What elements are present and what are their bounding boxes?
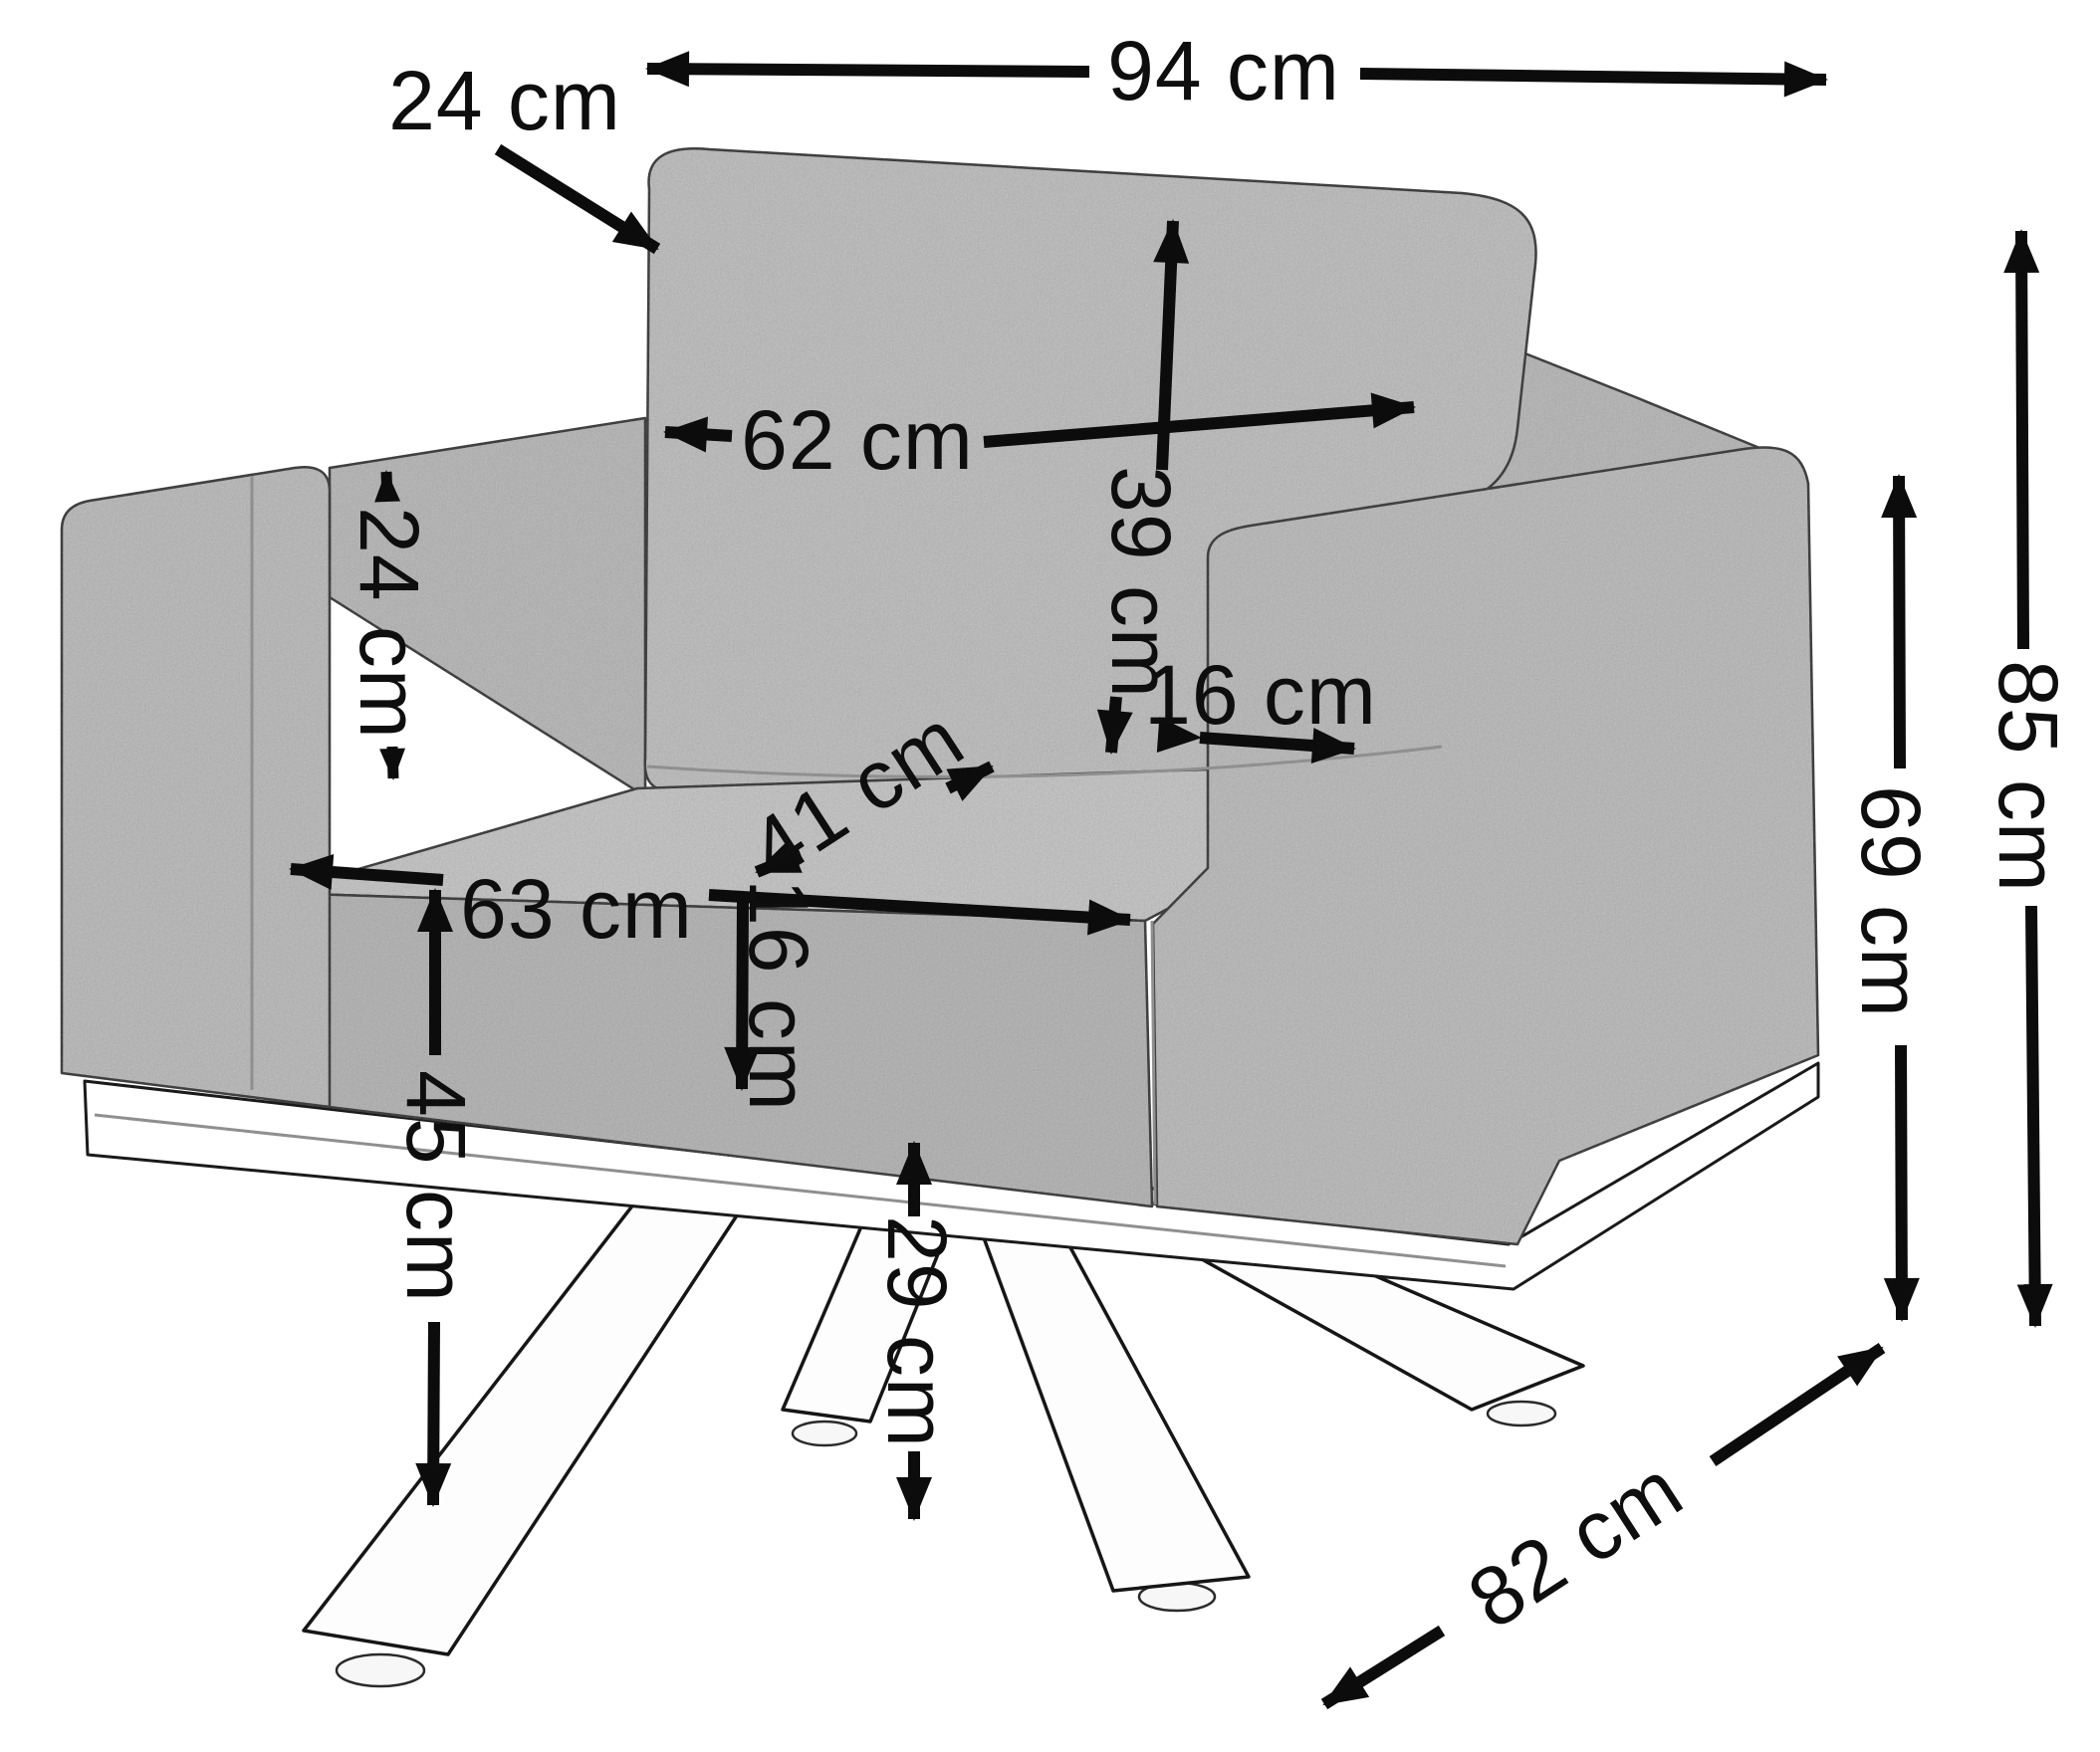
dim-armrest-width: 16 cm [1144,648,1377,749]
dim-seat-width-label: 63 cm [460,862,693,956]
dimension-line [2021,231,2023,649]
dim-overall-height: 85 cm [1982,231,2075,1326]
leg-front-center [982,1232,1249,1591]
dimension-line [1111,697,1116,753]
dim-seat-cushion-thickness: 16 cm [732,879,825,1112]
leg-pad-front-left [337,1654,424,1686]
dim-armrest-width-label: 16 cm [1144,648,1377,742]
dimension-line [1899,476,1900,768]
dim-overall-depth: 82 cm [1324,1348,1882,1704]
dim-overall-height-label: 85 cm [1982,660,2075,893]
dim-armrest-above-seat: 24 cm [343,472,436,778]
dim-seat-cushion-thickness-label: 16 cm [732,879,825,1112]
dimension-line [665,432,732,436]
leg-pad-rear-center [793,1422,856,1445]
dim-armrest-height-label: 69 cm [1844,785,1938,1018]
armchair-dimension-diagram: 94 cm 24 cm 62 cm 39 cm 24 cm 16 cm 41 c… [0,0,2100,1752]
dimension-line [1901,1045,1902,1320]
dim-back-cushion-thickness: 24 cm [388,54,657,249]
dim-overall-width-label: 94 cm [1107,24,1340,117]
dim-armrest-above-seat-label: 24 cm [343,507,436,740]
chair-fabric-body [62,148,1818,1244]
dimension-line [433,1322,434,1505]
armchair-dimension-diagram-page: 94 cm 24 cm 62 cm 39 cm 24 cm 16 cm 41 c… [0,0,2100,1752]
dim-back-cushion-width-label: 62 cm [741,393,974,487]
dim-armrest-height: 69 cm [1844,476,1938,1320]
dim-seat-height-label: 45 cm [389,1070,483,1303]
dimension-line [498,149,657,249]
dim-overall-depth-label: 82 cm [1452,1441,1698,1646]
dimension-line [392,747,393,778]
dimension-line [1360,74,1826,80]
leg-front-left [304,1200,739,1654]
dimension-line [1713,1348,1882,1461]
leg-pad-right [1488,1402,1555,1425]
dim-overall-width: 94 cm [647,24,1826,117]
dimension-line [2031,906,2035,1326]
left-armrest [62,467,330,1107]
dimension-line [386,472,387,500]
dimension-line [1324,1631,1442,1704]
dim-back-cushion-thickness-label: 24 cm [388,54,621,147]
dim-base-clearance-label: 29 cm [870,1215,964,1448]
dimension-line [647,69,1089,72]
